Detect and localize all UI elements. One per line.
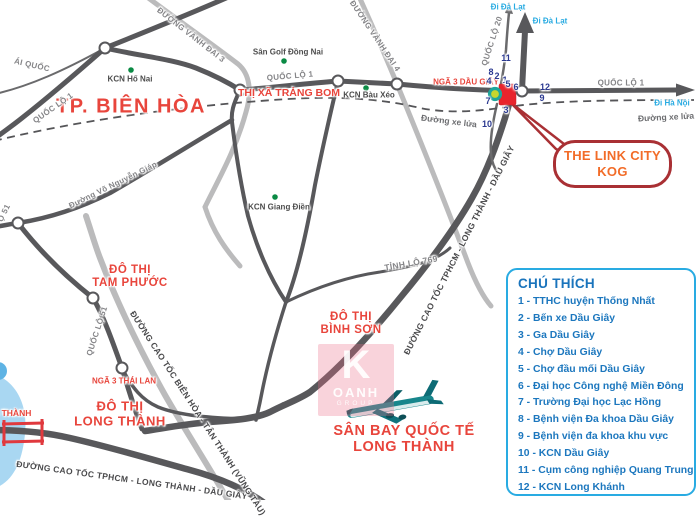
watermark-name: OANH bbox=[333, 386, 379, 399]
label-binh-son: ĐÔ THỊ BÌNH SƠN bbox=[320, 311, 381, 337]
marker-7: 7 bbox=[485, 96, 490, 106]
legend-item: 7 - Trường Đại học Lạc Hồng bbox=[518, 395, 685, 412]
legend-item: 2 - Bến xe Dầu Giây bbox=[518, 311, 685, 328]
legend-box: CHÚ THÍCH 1 - TTHC huyện Thống Nhất 2 - … bbox=[506, 268, 696, 496]
label-tam-phuoc: ĐÔ THỊ TAM PHƯỚC bbox=[92, 264, 167, 290]
project-callout-line2: KOG bbox=[597, 164, 628, 180]
label-di-da-lat-2: Đi Đà Lạt bbox=[533, 17, 568, 26]
label-san-bay-line2: LONG THÀNH bbox=[333, 439, 474, 455]
marker-5: 5 bbox=[505, 79, 510, 89]
legend-item: 11 - Cụm công nghiệp Quang Trung bbox=[518, 463, 685, 480]
project-callout: THE LINK CITY KOG bbox=[553, 140, 672, 188]
marker-2: 2 bbox=[494, 71, 499, 81]
label-tam-phuoc-line1: ĐÔ THỊ bbox=[92, 264, 167, 277]
label-kcn-bau-xeo: KCN Bàu Xéo bbox=[343, 91, 395, 100]
legend-item: 9 - Bệnh viện đa khoa khu vực bbox=[518, 429, 685, 446]
road-north-thick bbox=[522, 31, 525, 90]
legend-list: 1 - TTHC huyện Thống Nhất 2 - Bến xe Dầu… bbox=[518, 294, 685, 497]
project-callout-line1: THE LINK CITY bbox=[564, 148, 661, 164]
label-long-thanh-line1: ĐÔ THỊ bbox=[74, 399, 166, 414]
label-binh-son-line1: ĐÔ THỊ bbox=[320, 311, 381, 324]
marker-9: 9 bbox=[539, 93, 544, 103]
marker-11: 11 bbox=[501, 53, 511, 63]
label-long-thanh-line2: LONG THÀNH bbox=[74, 414, 166, 429]
river-shape-2 bbox=[0, 362, 7, 380]
legend-item: 4 - Chợ Dầu Giây bbox=[518, 345, 685, 362]
label-san-golf: Sân Golf Đồng Nai bbox=[253, 48, 323, 57]
label-nga3-thai-lan: NGÃ 3 THÁI LAN bbox=[92, 377, 156, 386]
label-long-thanh: ĐÔ THỊ LONG THÀNH bbox=[74, 399, 166, 428]
legend-item: 1 - TTHC huyện Thống Nhất bbox=[518, 294, 685, 311]
marker-8: 8 bbox=[488, 67, 493, 77]
watermark-letter: K bbox=[342, 344, 371, 386]
label-kcn-giang-dien: KCN Giang Điền bbox=[248, 203, 310, 212]
label-kcn-ho-nai: KCN Hố Nai bbox=[108, 75, 153, 84]
arrow-east-icon bbox=[676, 84, 695, 97]
road-nguyen-ai-quoc bbox=[0, 48, 105, 94]
legend-item: 10 - KCN Dầu Giây bbox=[518, 446, 685, 463]
marker-4: 4 bbox=[486, 76, 491, 86]
legend-item: 3 - Ga Dầu Giây bbox=[518, 328, 685, 345]
legend-item: 12 - KCN Long Khánh bbox=[518, 480, 685, 497]
legend-item: 6 - Đại học Công nghệ Miền Đông bbox=[518, 379, 685, 396]
label-thanh-fragment: G THÀNH bbox=[0, 408, 31, 418]
legend-item: 5 - Chợ đầu mối Dầu Giây bbox=[518, 362, 685, 379]
marker-3: 3 bbox=[503, 105, 508, 115]
legend-title: CHÚ THÍCH bbox=[518, 276, 685, 291]
map-canvas: K OANH GROUP TP. BIÊN HÒA THỊ XÃ TRẢNG B… bbox=[0, 0, 700, 500]
marker-6: 6 bbox=[513, 82, 518, 92]
marker-12: 12 bbox=[540, 82, 550, 92]
label-di-ha-noi: Đi Hà Nội bbox=[654, 99, 690, 108]
legend-item: 8 - Bệnh viện Đa khoa Dầu Giây bbox=[518, 412, 685, 429]
label-san-bay: SÂN BAY QUỐC TẾ LONG THÀNH bbox=[333, 423, 474, 455]
label-di-da-lat-1: Đi Đà Lạt bbox=[491, 3, 526, 12]
label-bien-hoa: TP. BIÊN HÒA bbox=[56, 96, 206, 119]
road-binh-son bbox=[256, 302, 286, 420]
marker-10: 10 bbox=[482, 119, 492, 129]
watermark-logo: K OANH GROUP bbox=[318, 344, 394, 416]
road-vo-nguyen-giap bbox=[0, 120, 232, 227]
arrow-north-icon bbox=[516, 12, 534, 33]
label-tam-phuoc-line2: TAM PHƯỚC bbox=[92, 277, 167, 290]
label-san-bay-line1: SÂN BAY QUỐC TẾ bbox=[333, 423, 474, 439]
label-ql1-east: QUỐC LỘ 1 bbox=[598, 79, 645, 88]
label-binh-son-line2: BÌNH SƠN bbox=[320, 324, 381, 337]
watermark-sub: GROUP bbox=[337, 399, 376, 408]
project-dot-marker bbox=[490, 89, 501, 100]
road-trangbom-south-right bbox=[286, 81, 338, 302]
label-trang-bom: THỊ XÃ TRẢNG BOM bbox=[238, 87, 340, 99]
